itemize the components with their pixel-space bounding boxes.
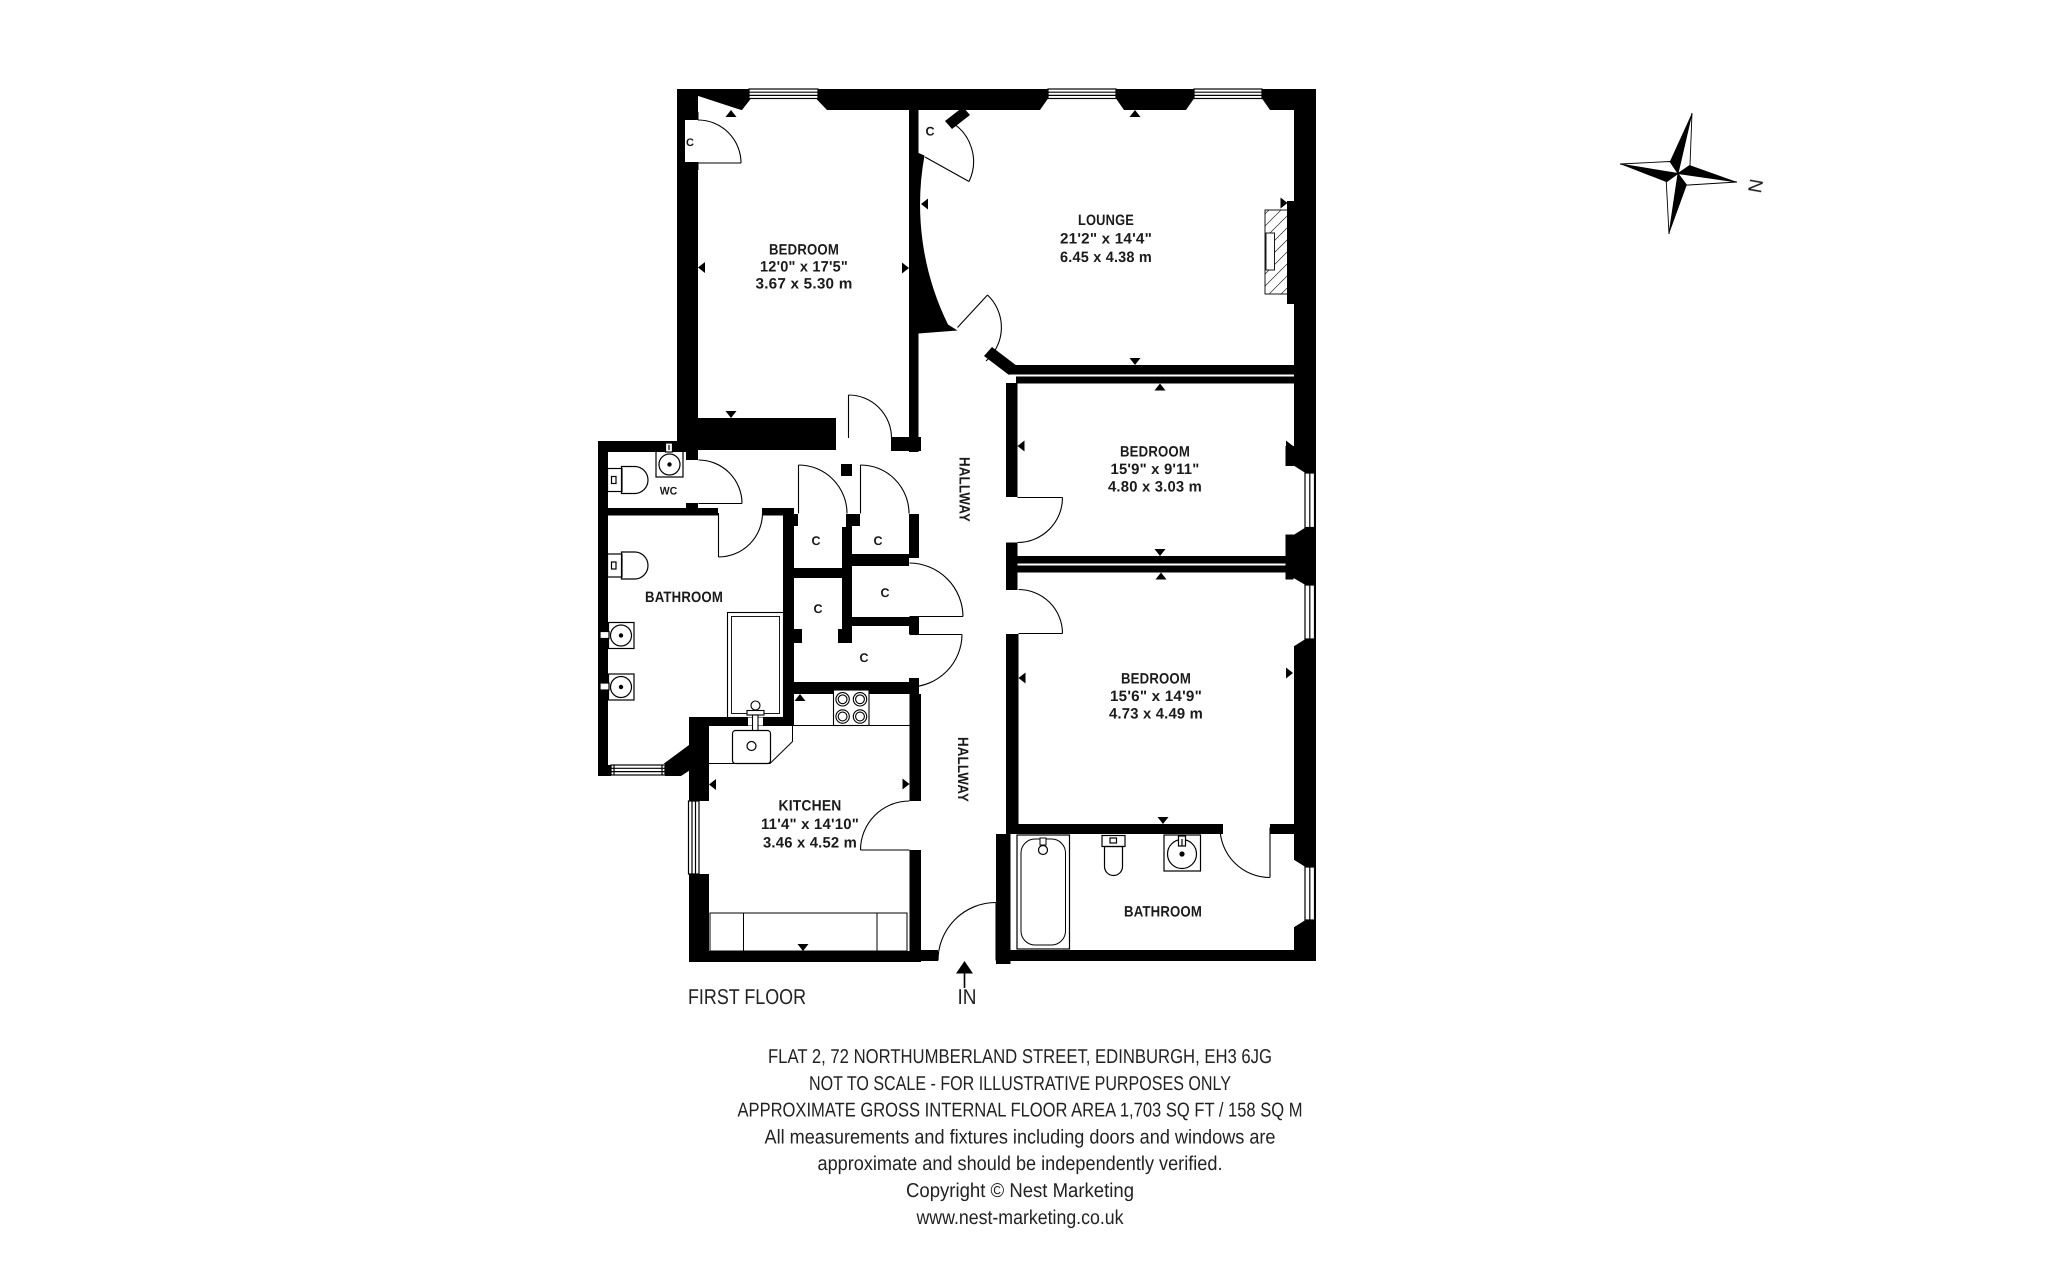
svg-text:APPROXIMATE GROSS INTERNAL FLO: APPROXIMATE GROSS INTERNAL FLOOR AREA 1,… <box>738 1100 1303 1122</box>
svg-text:4.73 x 4.49 m: 4.73 x 4.49 m <box>1109 706 1203 723</box>
svg-text:FIRST FLOOR: FIRST FLOOR <box>688 985 806 1009</box>
svg-text:BEDROOM: BEDROOM <box>1120 444 1190 461</box>
svg-text:C: C <box>686 137 694 149</box>
svg-text:C: C <box>859 651 868 665</box>
svg-text:HALLWAY: HALLWAY <box>956 457 973 522</box>
svg-text:3.67 x 5.30 m: 3.67 x 5.30 m <box>756 276 853 293</box>
svg-text:N: N <box>1743 177 1766 194</box>
svg-text:BATHROOM: BATHROOM <box>645 589 723 606</box>
svg-text:15'9" x 9'11": 15'9" x 9'11" <box>1111 461 1200 478</box>
svg-text:C: C <box>811 534 820 548</box>
svg-text:www.nest-marketing.co.uk: www.nest-marketing.co.uk <box>916 1207 1125 1229</box>
svg-text:21'2" x 14'4": 21'2" x 14'4" <box>1060 231 1152 248</box>
svg-text:3.46 x 4.52 m: 3.46 x 4.52 m <box>763 835 857 852</box>
svg-text:12'0" x 17'5": 12'0" x 17'5" <box>760 259 848 276</box>
svg-text:NOT TO SCALE - FOR ILLUSTRATIV: NOT TO SCALE - FOR ILLUSTRATIVE PURPOSES… <box>809 1073 1231 1095</box>
svg-text:4.80 x 3.03 m: 4.80 x 3.03 m <box>1108 479 1202 496</box>
svg-text:11'4" x 14'10": 11'4" x 14'10" <box>761 816 859 833</box>
svg-text:approximate and should be inde: approximate and should be independently … <box>818 1153 1223 1175</box>
svg-text:6.45 x 4.38 m: 6.45 x 4.38 m <box>1060 249 1152 266</box>
svg-text:C: C <box>925 125 934 139</box>
svg-text:C: C <box>873 534 882 548</box>
svg-text:IN: IN <box>958 985 977 1009</box>
svg-text:LOUNGE: LOUNGE <box>1078 212 1134 229</box>
svg-text:BEDROOM: BEDROOM <box>769 242 839 259</box>
svg-text:KITCHEN: KITCHEN <box>779 798 842 815</box>
svg-text:All measurements and fixtures: All measurements and fixtures including … <box>765 1126 1276 1148</box>
svg-text:C: C <box>813 602 822 616</box>
svg-text:WC: WC <box>660 486 678 498</box>
svg-text:HALLWAY: HALLWAY <box>954 737 971 802</box>
svg-text:15'6" x 14'9": 15'6" x 14'9" <box>1110 688 1202 705</box>
svg-text:BEDROOM: BEDROOM <box>1121 671 1191 688</box>
svg-text:Copyright © Nest Marketing: Copyright © Nest Marketing <box>906 1180 1134 1202</box>
svg-text:BATHROOM: BATHROOM <box>1124 904 1202 921</box>
svg-text:FLAT 2, 72 NORTHUMBERLAND STRE: FLAT 2, 72 NORTHUMBERLAND STREET, EDINBU… <box>768 1046 1272 1068</box>
svg-text:C: C <box>880 586 889 600</box>
